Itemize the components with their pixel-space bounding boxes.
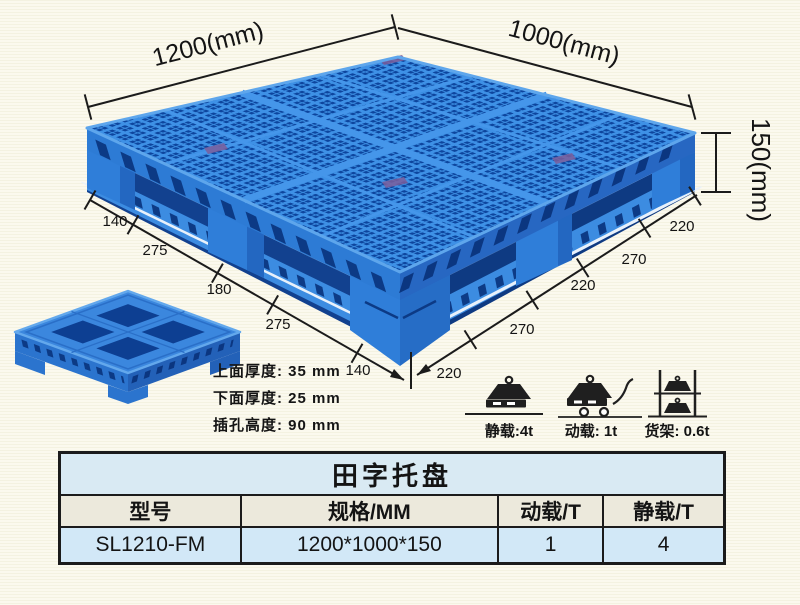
static-load-icon [465,377,543,414]
left-chain-label: 275 [142,242,167,259]
column-header-size: 规格/MM [242,496,497,526]
dimension-height [701,133,731,192]
left-chain-label: 275 [265,316,290,333]
top-thickness-spec: 上面厚度: 35 mm [213,358,341,385]
thickness-specs: 上面厚度: 35 mm 下面厚度: 25 mm 插孔高度: 90 mm [213,358,341,439]
left-chain-label: 140 [102,213,127,230]
dynamic-load-label: 动载: 1t [565,420,618,441]
load-icons [465,370,707,417]
fork-hole-height-spec: 插孔高度: 90 mm [213,412,341,439]
static-load-label: 静载:4t [485,420,533,441]
spec-table: 田字托盘 型号 规格/MM 动载/T 静载/T SL1210-FM 1200*1… [58,451,726,565]
column-header-static-load: 静载/T [604,496,723,526]
width-dimension-label: 1200(mm) [149,16,266,72]
cell-static-load: 4 [604,528,723,562]
table-title: 田字托盘 [61,454,723,494]
small-pallet-illustration [15,291,241,404]
cell-dynamic-load: 1 [499,528,602,562]
right-chain-label: 270 [509,321,534,338]
height-dimension-label: 150(mm) [746,118,776,222]
rack-load-icon [648,370,707,417]
right-chain-label: 220 [436,365,461,382]
column-header-dynamic-load: 动载/T [499,496,602,526]
dynamic-load-icon [558,376,642,417]
bottom-thickness-spec: 下面厚度: 25 mm [213,385,341,412]
right-chain-label: 220 [669,218,694,235]
pallet-spec-sheet: 1200(mm) 1000(mm) 150(mm) 140 275 180 27… [0,0,800,600]
cell-model: SL1210-FM [61,528,240,562]
left-chain-label: 180 [206,281,231,298]
left-chain-label: 140 [345,362,370,379]
rack-load-label: 货架: 0.6t [644,420,709,441]
right-chain-label: 270 [621,251,646,268]
cell-size: 1200*1000*150 [242,528,497,562]
column-header-model: 型号 [61,496,240,526]
right-chain-label: 220 [570,277,595,294]
